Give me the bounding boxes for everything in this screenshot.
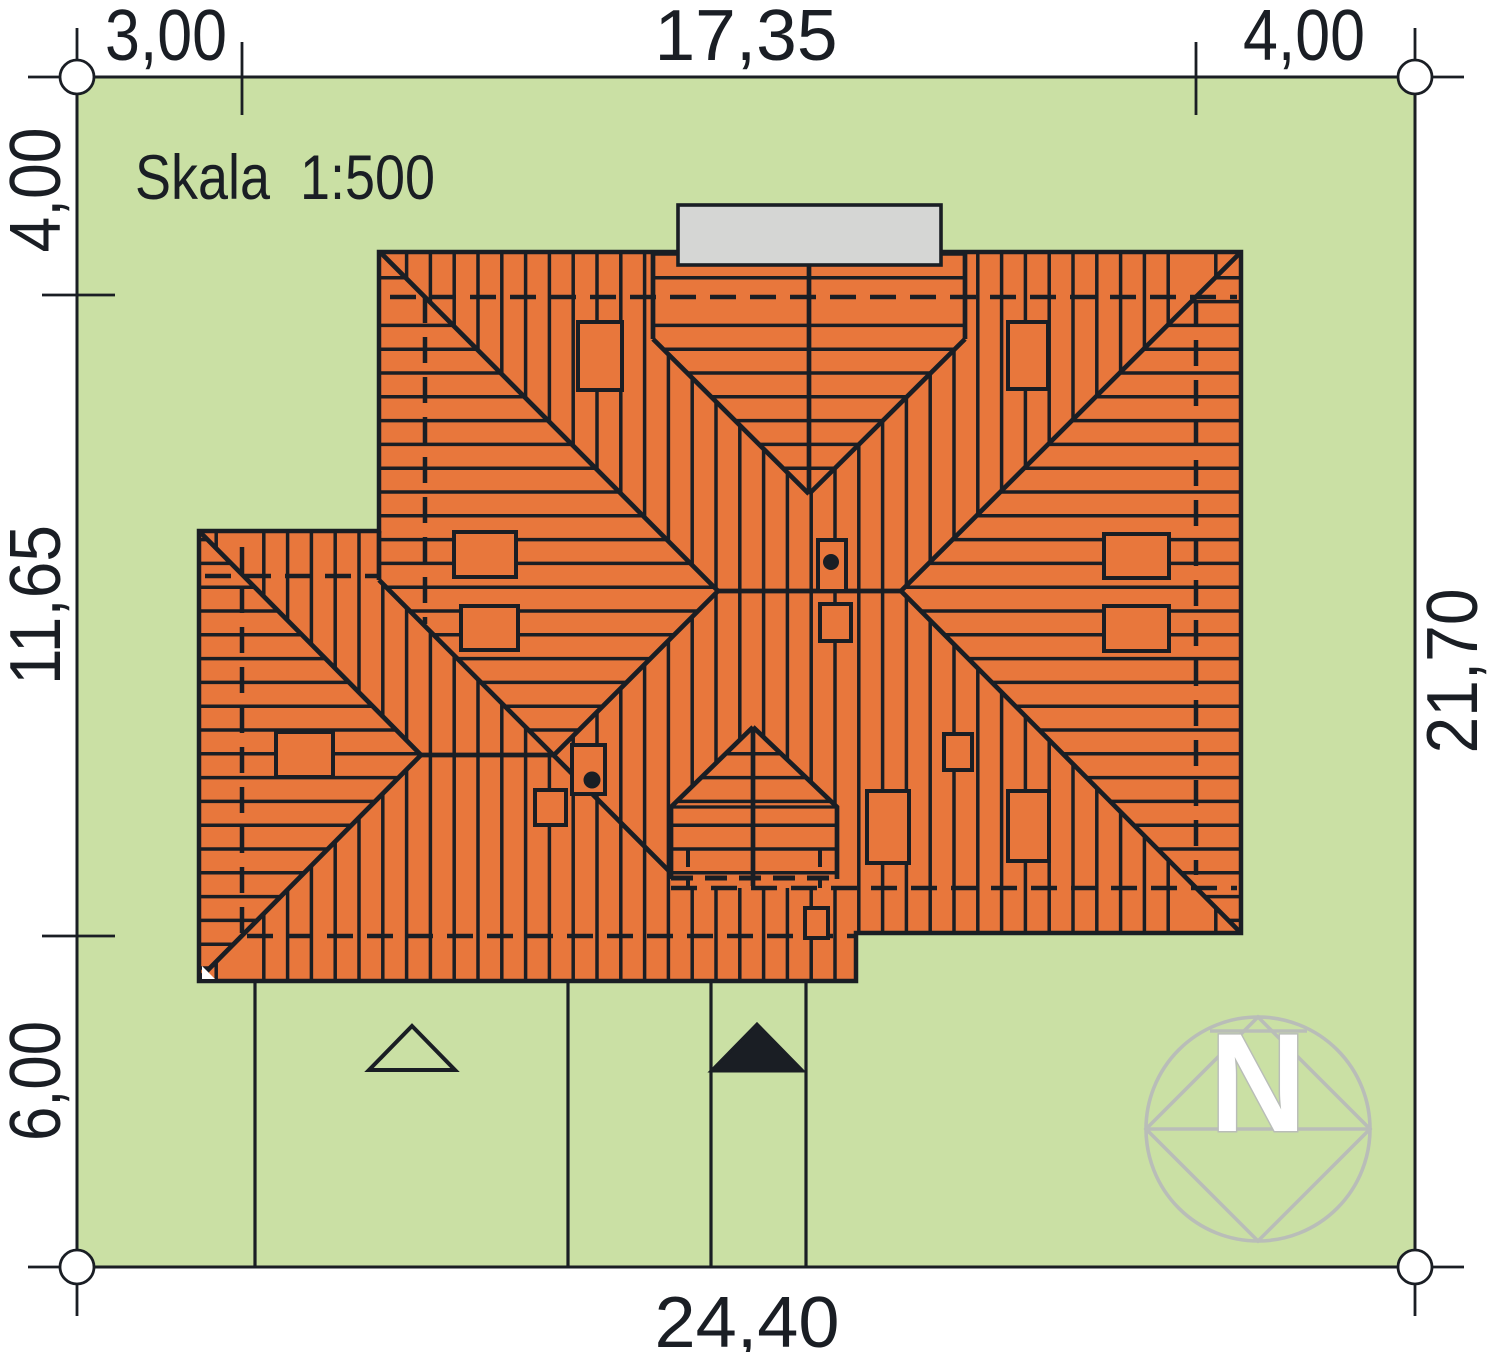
svg-text:4,00: 4,00	[0, 128, 76, 253]
svg-text:Skala 1:500: Skala 1:500	[135, 143, 435, 213]
svg-text:4,00: 4,00	[1243, 0, 1365, 76]
svg-text:3,00: 3,00	[105, 0, 227, 76]
svg-text:24,40: 24,40	[655, 1283, 840, 1352]
svg-text:N: N	[1210, 1004, 1306, 1161]
svg-text:21,70: 21,70	[1413, 589, 1487, 754]
svg-text:6,00: 6,00	[0, 1021, 76, 1141]
svg-text:11,65: 11,65	[0, 525, 76, 685]
svg-text:17,35: 17,35	[655, 0, 838, 76]
